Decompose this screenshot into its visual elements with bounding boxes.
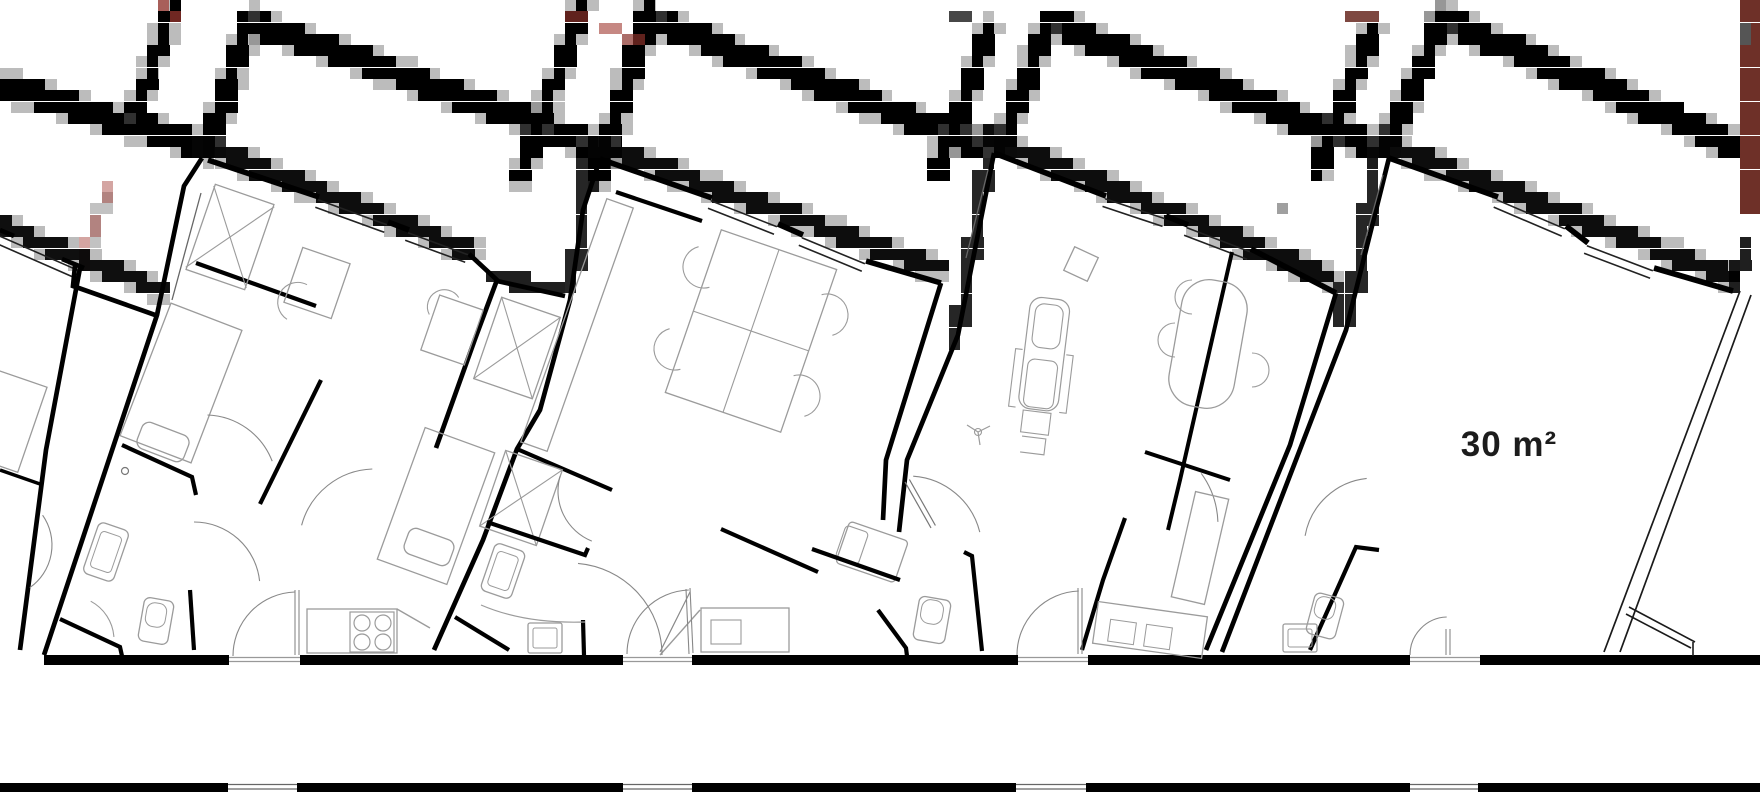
svg-text:30 m²: 30 m² bbox=[1461, 425, 1557, 464]
